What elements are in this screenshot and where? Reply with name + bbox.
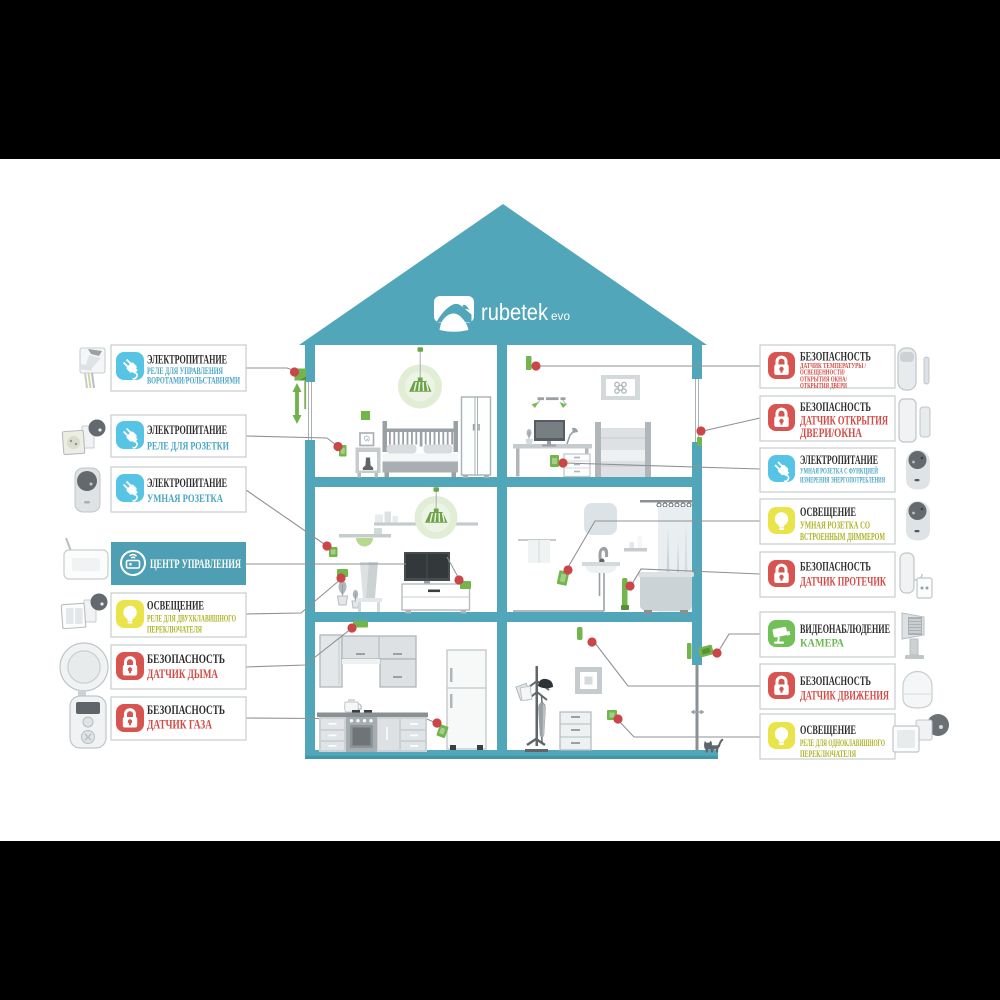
svg-text:РЕЛЕ ДЛЯ ДВУХКЛАВИШНОГО: РЕЛЕ ДЛЯ ДВУХКЛАВИШНОГО xyxy=(147,614,236,624)
svg-text:ДАТЧИК ДВИЖЕНИЯ: ДАТЧИК ДВИЖЕНИЯ xyxy=(800,689,889,703)
svg-text:РЕЛЕ ДЛЯ УПРАВЛЕНИЯ: РЕЛЕ ДЛЯ УПРАВЛЕНИЯ xyxy=(147,366,223,376)
svg-text:РЕЛЕ ДЛЯ РОЗЕТКИ: РЕЛЕ ДЛЯ РОЗЕТКИ xyxy=(147,439,229,453)
svg-text:ВИДЕОНАБЛЮДЕНИЕ: ВИДЕОНАБЛЮДЕНИЕ xyxy=(800,621,890,636)
svg-text:БЕЗОПАСНОСТЬ: БЕЗОПАСНОСТЬ xyxy=(800,559,871,574)
svg-text:ИЗМЕРЕНИЯ ЭНЕРГОПОТРЕБЛЕНИЯ: ИЗМЕРЕНИЯ ЭНЕРГОПОТРЕБЛЕНИЯ xyxy=(800,475,885,485)
svg-text:ДАТЧИК ДЫМА: ДАТЧИК ДЫМА xyxy=(147,667,218,681)
svg-text:БЕЗОПАСНОСТЬ: БЕЗОПАСНОСТЬ xyxy=(800,673,871,688)
svg-text:ВОРОТАМИ/РОЛЬСТАВНЯМИ: ВОРОТАМИ/РОЛЬСТАВНЯМИ xyxy=(147,376,240,386)
svg-text:evo: evo xyxy=(551,309,570,323)
svg-text:ЦЕНТР УПРАВЛЕНИЯ: ЦЕНТР УПРАВЛЕНИЯ xyxy=(150,557,241,571)
svg-text:ОСВЕЩЕНИЕ: ОСВЕЩЕНИЕ xyxy=(147,598,204,613)
svg-text:ОСВЕЩЕНИЕ: ОСВЕЩЕНИЕ xyxy=(800,504,856,519)
svg-text:ЭЛЕКТРОПИТАНИЕ: ЭЛЕКТРОПИТАНИЕ xyxy=(147,475,227,490)
svg-text:БЕЗОПАСНОСТЬ: БЕЗОПАСНОСТЬ xyxy=(147,651,225,666)
svg-text:РЕЛЕ ДЛЯ ОДНОКЛАВИШНОГО: РЕЛЕ ДЛЯ ОДНОКЛАВИШНОГО xyxy=(800,739,885,749)
svg-text:ДАТЧИК ПРОТЕЧИК: ДАТЧИК ПРОТЕЧИК xyxy=(800,575,886,589)
svg-text:УМНАЯ РОЗЕТКА СО: УМНАЯ РОЗЕТКА СО xyxy=(800,521,870,532)
svg-text:ОСВЕЩЕНИЕ: ОСВЕЩЕНИЕ xyxy=(800,722,856,737)
svg-text:КАМЕРА: КАМЕРА xyxy=(800,636,844,650)
svg-text:rubetek: rubetek xyxy=(481,299,548,325)
svg-text:ОТКРЫТИЯ ДВЕРИ: ОТКРЫТИЯ ДВЕРИ xyxy=(800,381,847,390)
svg-text:ЭЛЕКТРОПИТАНИЕ: ЭЛЕКТРОПИТАНИЕ xyxy=(147,352,227,367)
svg-text:БЕЗОПАСНОСТЬ: БЕЗОПАСНОСТЬ xyxy=(800,399,871,414)
svg-text:ПЕРЕКЛЮЧАТЕЛЯ: ПЕРЕКЛЮЧАТЕЛЯ xyxy=(147,625,202,635)
svg-text:ДАТЧИК ГАЗА: ДАТЧИК ГАЗА xyxy=(147,718,212,732)
svg-text:ПЕРЕКЛЮЧАТЕЛЯ: ПЕРЕКЛЮЧАТЕЛЯ xyxy=(800,750,856,760)
svg-text:БЕЗОПАСНОСТЬ: БЕЗОПАСНОСТЬ xyxy=(147,702,225,717)
svg-text:ДВЕРИ/ОКНА: ДВЕРИ/ОКНА xyxy=(800,426,862,440)
svg-text:УМНАЯ РОЗЕТКА: УМНАЯ РОЗЕТКА xyxy=(147,491,223,505)
svg-text:ЭЛЕКТРОПИТАНИЕ: ЭЛЕКТРОПИТАНИЕ xyxy=(147,422,227,437)
svg-text:ВСТРОЕННЫМ ДИММЕРОМ: ВСТРОЕННЫМ ДИММЕРОМ xyxy=(800,532,885,543)
